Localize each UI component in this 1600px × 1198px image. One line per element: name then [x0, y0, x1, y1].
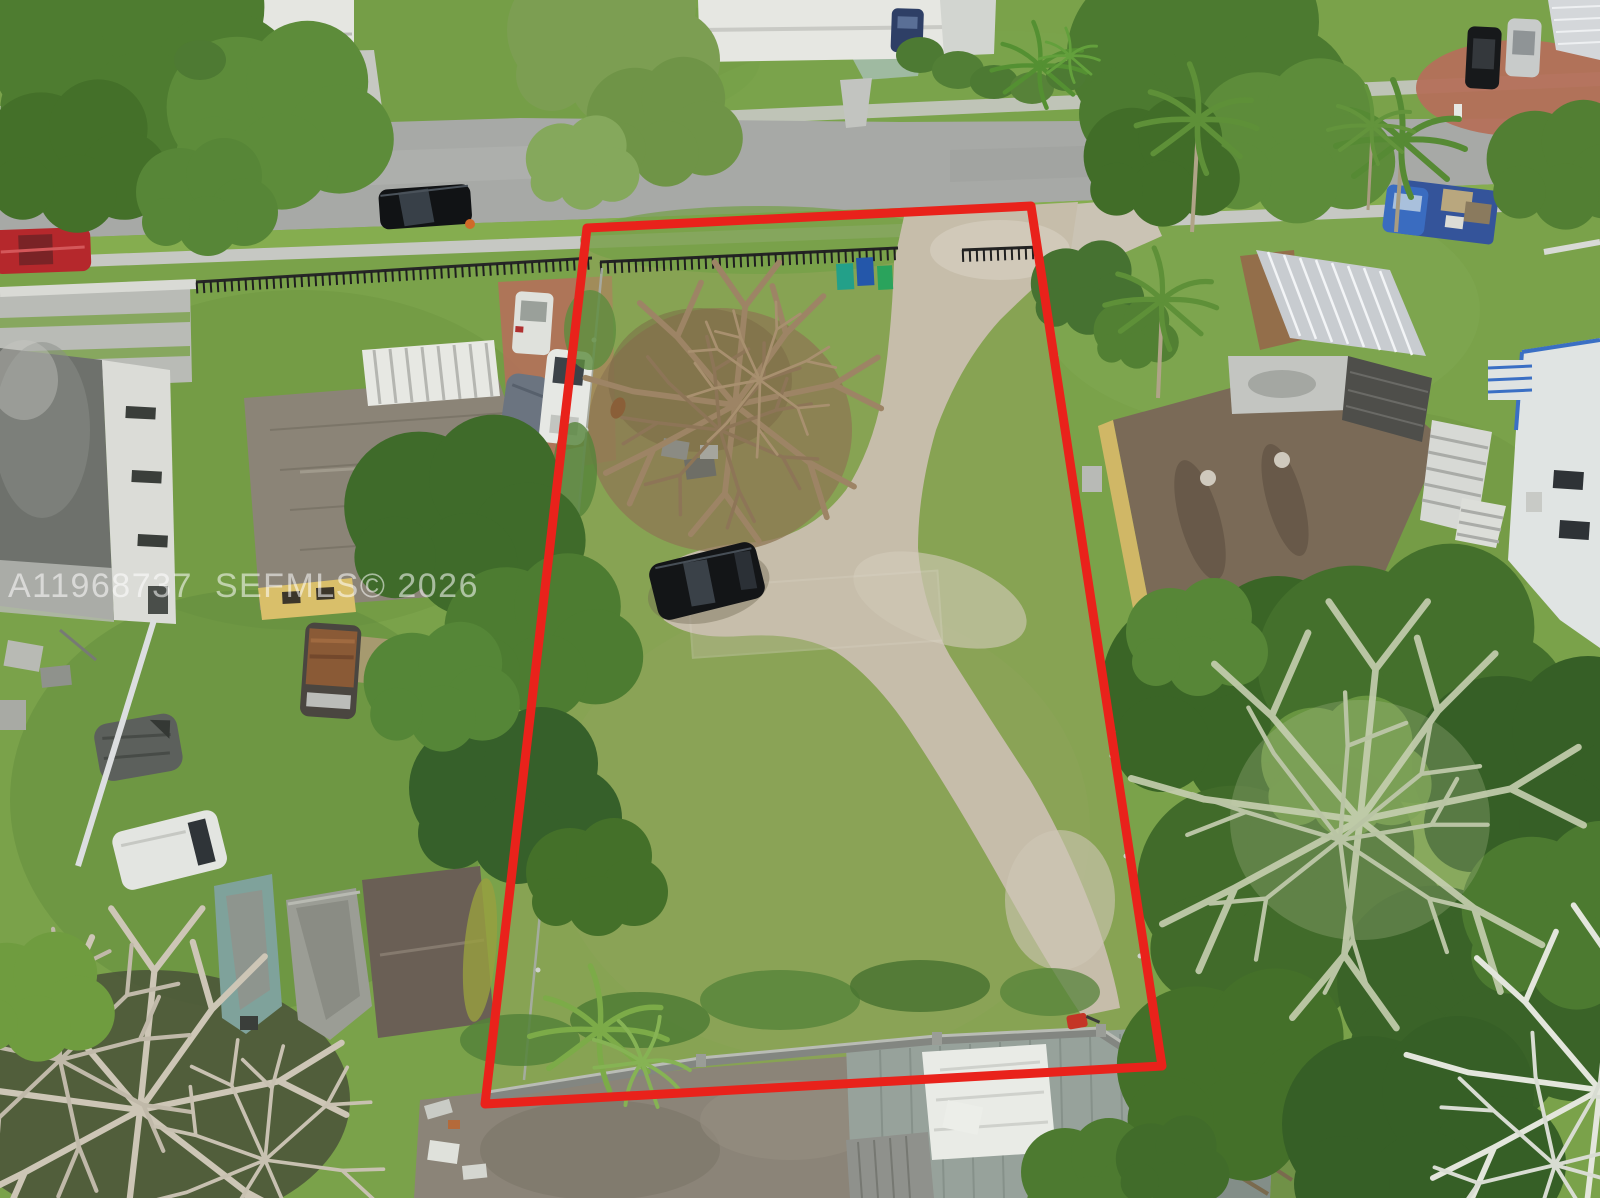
window-slit [137, 534, 168, 548]
doorway [148, 586, 168, 614]
window-slit [125, 406, 156, 420]
window [282, 591, 301, 604]
white-two-story-building [0, 340, 176, 624]
teal-boat [214, 874, 282, 1034]
vw-bus [299, 622, 361, 720]
ac-unit [1526, 492, 1542, 512]
silver-car-topright [1505, 18, 1542, 78]
black-car-street [378, 184, 473, 230]
ac-unit [1082, 466, 1102, 492]
bush [174, 40, 226, 80]
scene-canvas [0, 0, 1600, 1198]
red-car-curb [0, 227, 91, 274]
white-truck-left-neighbor [512, 291, 554, 355]
blue-trash-bin [856, 257, 874, 286]
junk-in-bed [1445, 215, 1464, 229]
window [1553, 470, 1584, 490]
window [316, 587, 335, 600]
black-suv-topright [1465, 26, 1502, 90]
window [1559, 520, 1590, 540]
aerial-photo: A11968737 SEFMLS© 2026 [0, 0, 1600, 1198]
dark-roof-shed [362, 866, 502, 1038]
carport-topcenter [940, 0, 996, 56]
junk-in-bed [1464, 201, 1492, 224]
green-trash-bin [877, 265, 893, 290]
traffic-cone [465, 219, 475, 229]
white-pergola [362, 340, 500, 406]
window-slit [131, 470, 162, 484]
teal-trash-bin [836, 263, 854, 290]
